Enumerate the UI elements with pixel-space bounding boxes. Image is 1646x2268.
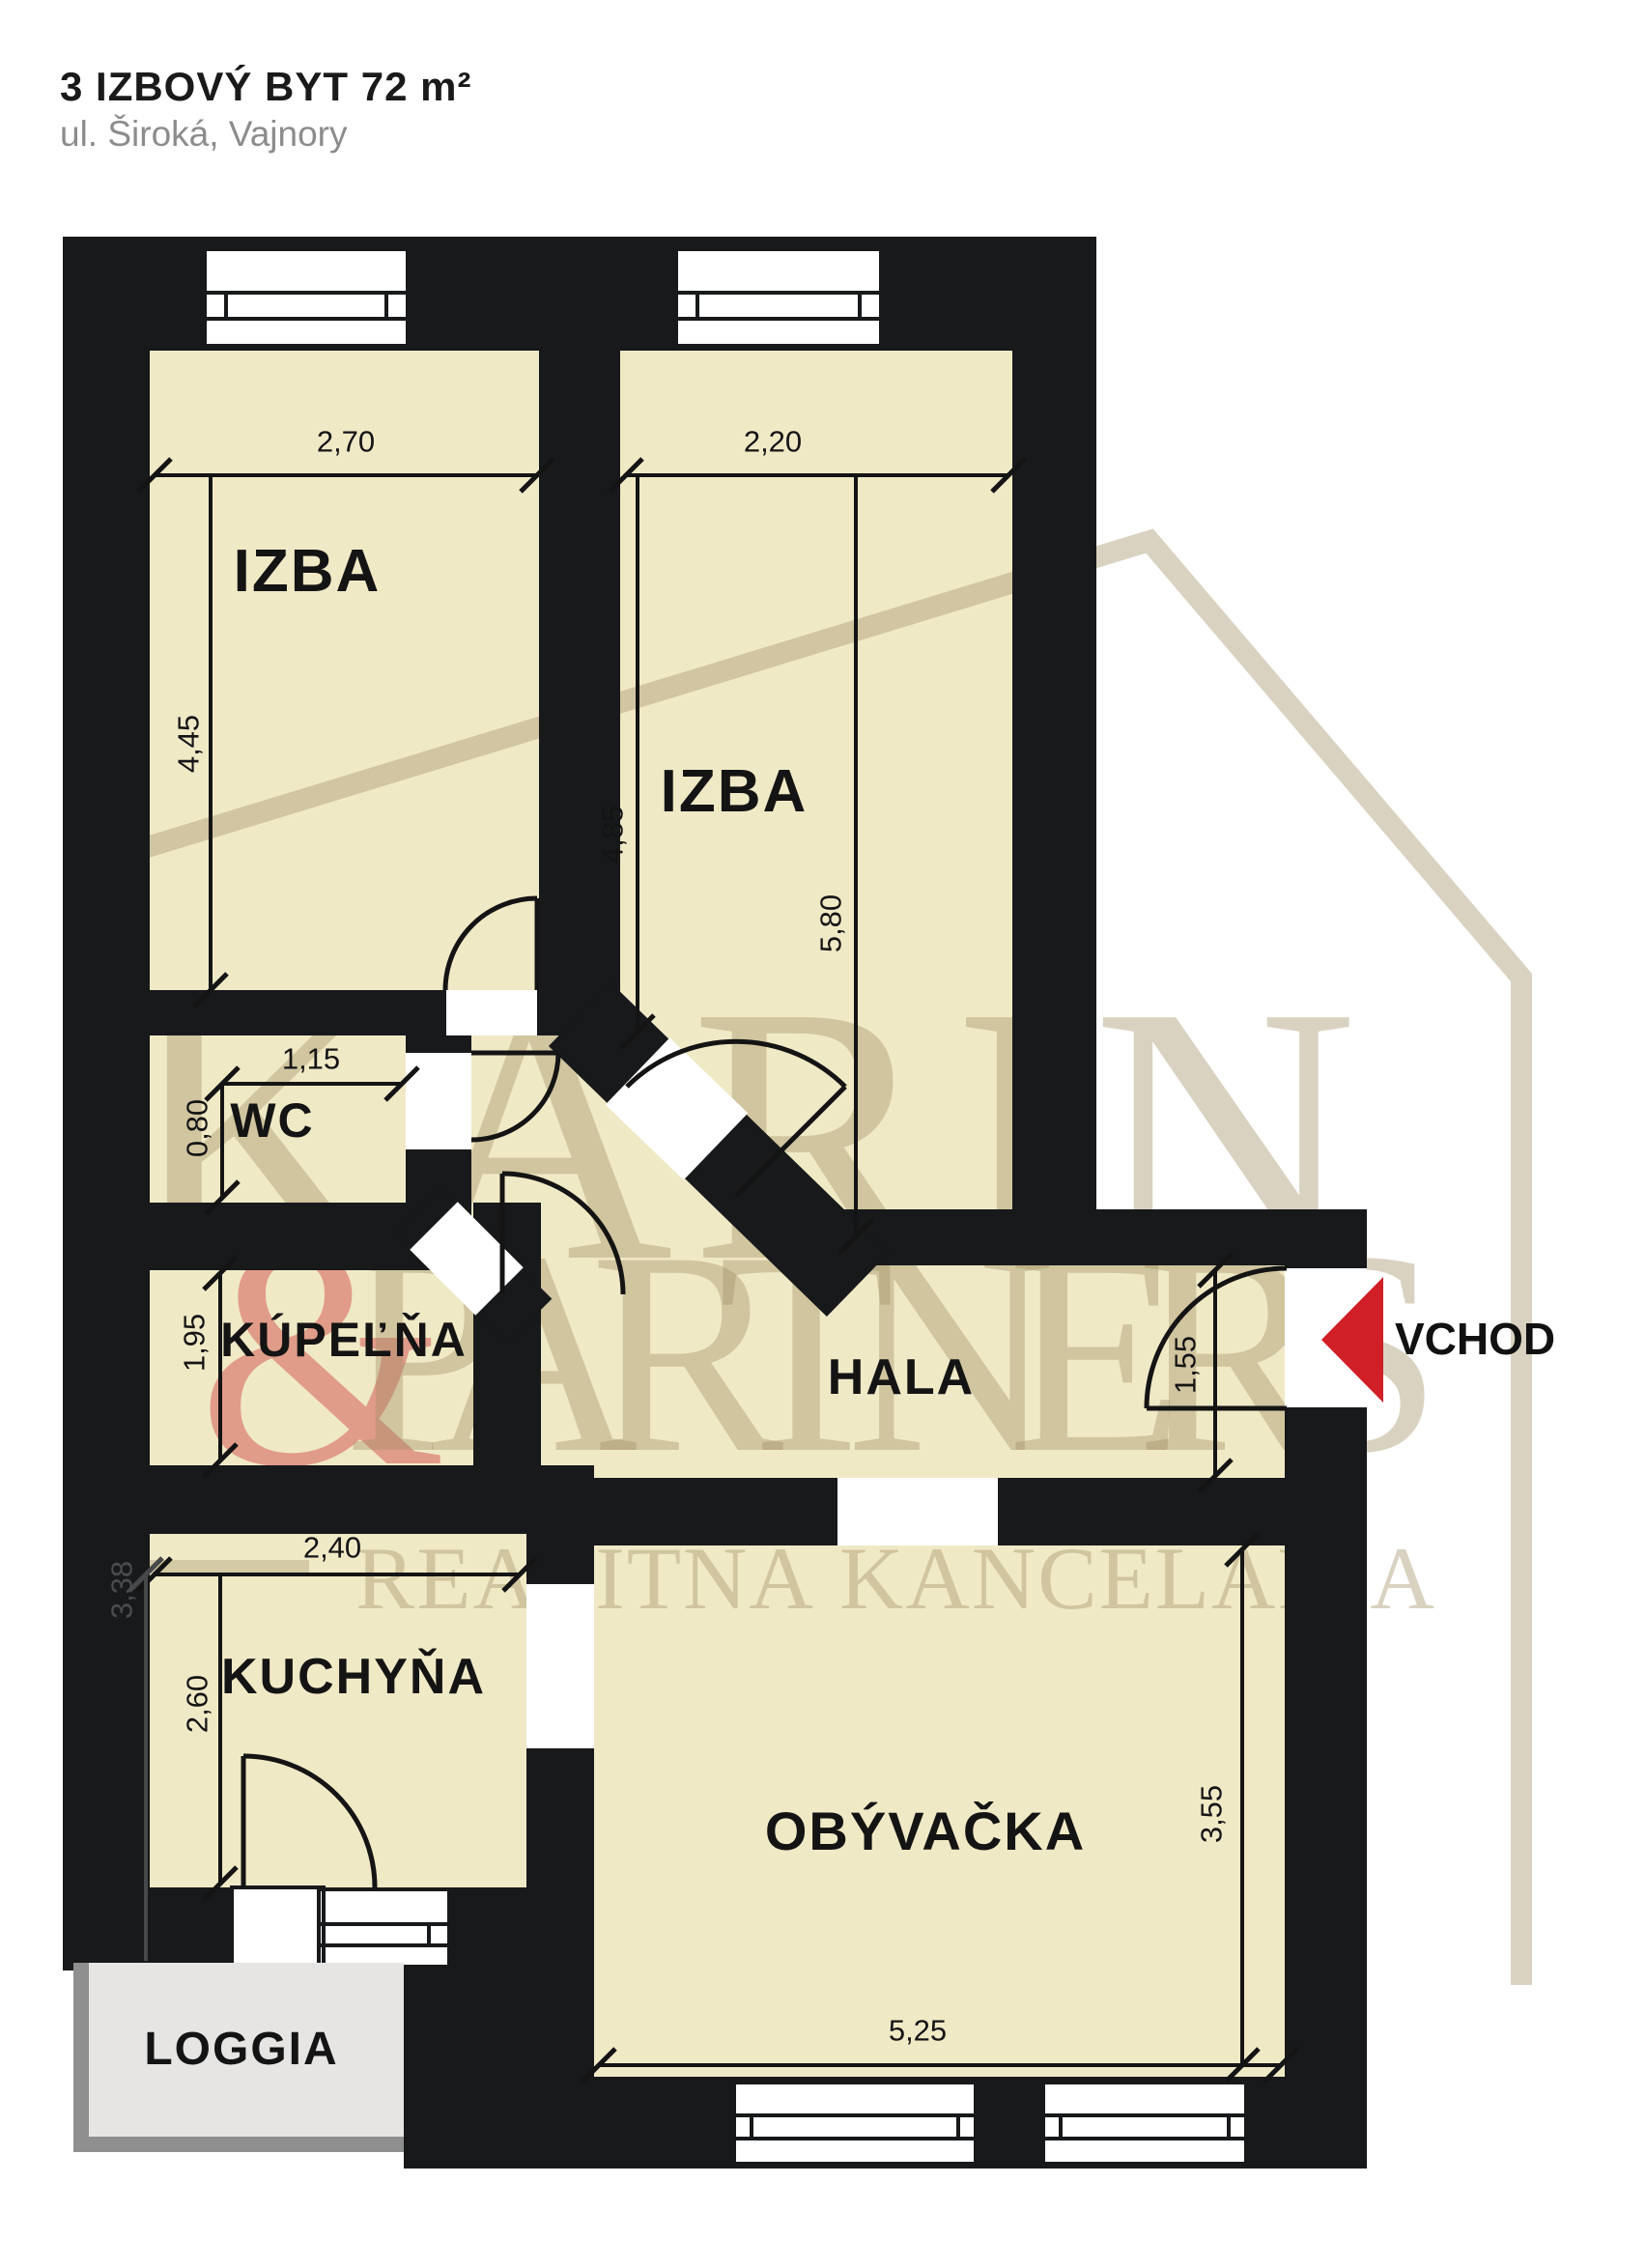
dim-hala-height: 1,55 — [1171, 1336, 1201, 1394]
dim-izba2-width: 2,20 — [744, 427, 802, 457]
room-label-kuchyna: KUCHYŇA — [221, 1652, 486, 1702]
walls — [63, 237, 1367, 2169]
dim-izba2-height-full: 5,80 — [816, 894, 846, 952]
dim-kupelna-height: 1,95 — [180, 1314, 210, 1372]
wall-kupelna-kuchyna — [150, 1465, 594, 1534]
window-kuchyna — [319, 1889, 449, 1967]
dim-wc-width: 1,15 — [282, 1044, 340, 1074]
wall-right-upper — [1012, 351, 1096, 1212]
window-izba2 — [676, 249, 881, 346]
opening-hala-obyvacka — [837, 1478, 998, 1545]
dim-line-hala-height — [1199, 1254, 1232, 1492]
loggia-shadow-bottom — [73, 2137, 404, 2152]
entrance-label: VCHOD — [1395, 1313, 1555, 1365]
dim-obyvacka-height: 3,55 — [1197, 1785, 1227, 1843]
opening-izba2-diagonal-door — [638, 1071, 716, 1147]
opening-kuchyna-obyvacka — [526, 1584, 594, 1748]
window-izba1 — [205, 249, 408, 346]
dim-izba2-height-inner: 4,85 — [598, 806, 628, 864]
dim-line-izba2-width — [610, 459, 1025, 492]
room-label-izba1: IZBA — [234, 542, 382, 602]
opening-izba1-door — [446, 990, 537, 1035]
wall-izba1-wc — [150, 990, 620, 1035]
dim-izba1-height: 4,45 — [174, 715, 204, 773]
room-label-izba2: IZBA — [661, 762, 809, 822]
room-label-wc: WC — [230, 1096, 314, 1145]
loggia-shadow-left — [73, 1963, 89, 2152]
window-obyvacka-1 — [734, 2083, 976, 2164]
dim-line-kuchyna-height — [204, 1574, 237, 1900]
door-izba1 — [445, 898, 537, 990]
copyright-mark: © — [1229, 2084, 1243, 2107]
page-title: 3 IZBOVÝ BYT 72 m² — [60, 64, 471, 110]
room-label-loggia: LOGGIA — [144, 2027, 338, 2073]
wall-bottom-left-block — [404, 1970, 594, 2077]
room-label-hala: HALA — [828, 1352, 975, 1403]
wall-diagonal-izba2-hala — [580, 1014, 858, 1285]
floorplan-page: KARIN & PARTNERS REALITNÁ KANCELÁRIA — [0, 0, 1646, 2268]
dim-line-izba1-width — [138, 459, 553, 492]
dim-obyvacka-width: 5,25 — [889, 2016, 947, 2046]
door-arcs — [243, 898, 1287, 1887]
door-wc — [471, 1053, 558, 1140]
dim-kuchyna-height: 2,60 — [183, 1675, 213, 1733]
dim-wc-height: 0,80 — [183, 1099, 213, 1157]
dim-line-obyvacka-width — [582, 2049, 1297, 2082]
dim-kuchyna-width: 2,40 — [303, 1533, 361, 1563]
opening-balcony-door — [232, 1887, 324, 1970]
room-label-kupelna: KÚPEĽŇA — [220, 1316, 468, 1364]
dim-line-izba2-height-full — [839, 475, 872, 1253]
opening-kupelna-diagonal-door — [434, 1226, 499, 1291]
room-label-obyvacka: OBÝVAČKA — [765, 1804, 1086, 1858]
dim-line-obyvacka-height — [1226, 1533, 1259, 2082]
dim-line-izba2-height-inner — [621, 475, 654, 1048]
dim-izba1-width: 2,70 — [317, 427, 375, 457]
window-obyvacka-2 — [1043, 2083, 1246, 2164]
page-subtitle: ul. Široká, Vajnory — [60, 114, 348, 155]
dim-left-wall-height: 3,38 — [107, 1561, 137, 1619]
wall-left — [63, 237, 150, 1970]
door-balcony — [243, 1756, 375, 1887]
wall-mid-izba — [539, 351, 620, 1035]
